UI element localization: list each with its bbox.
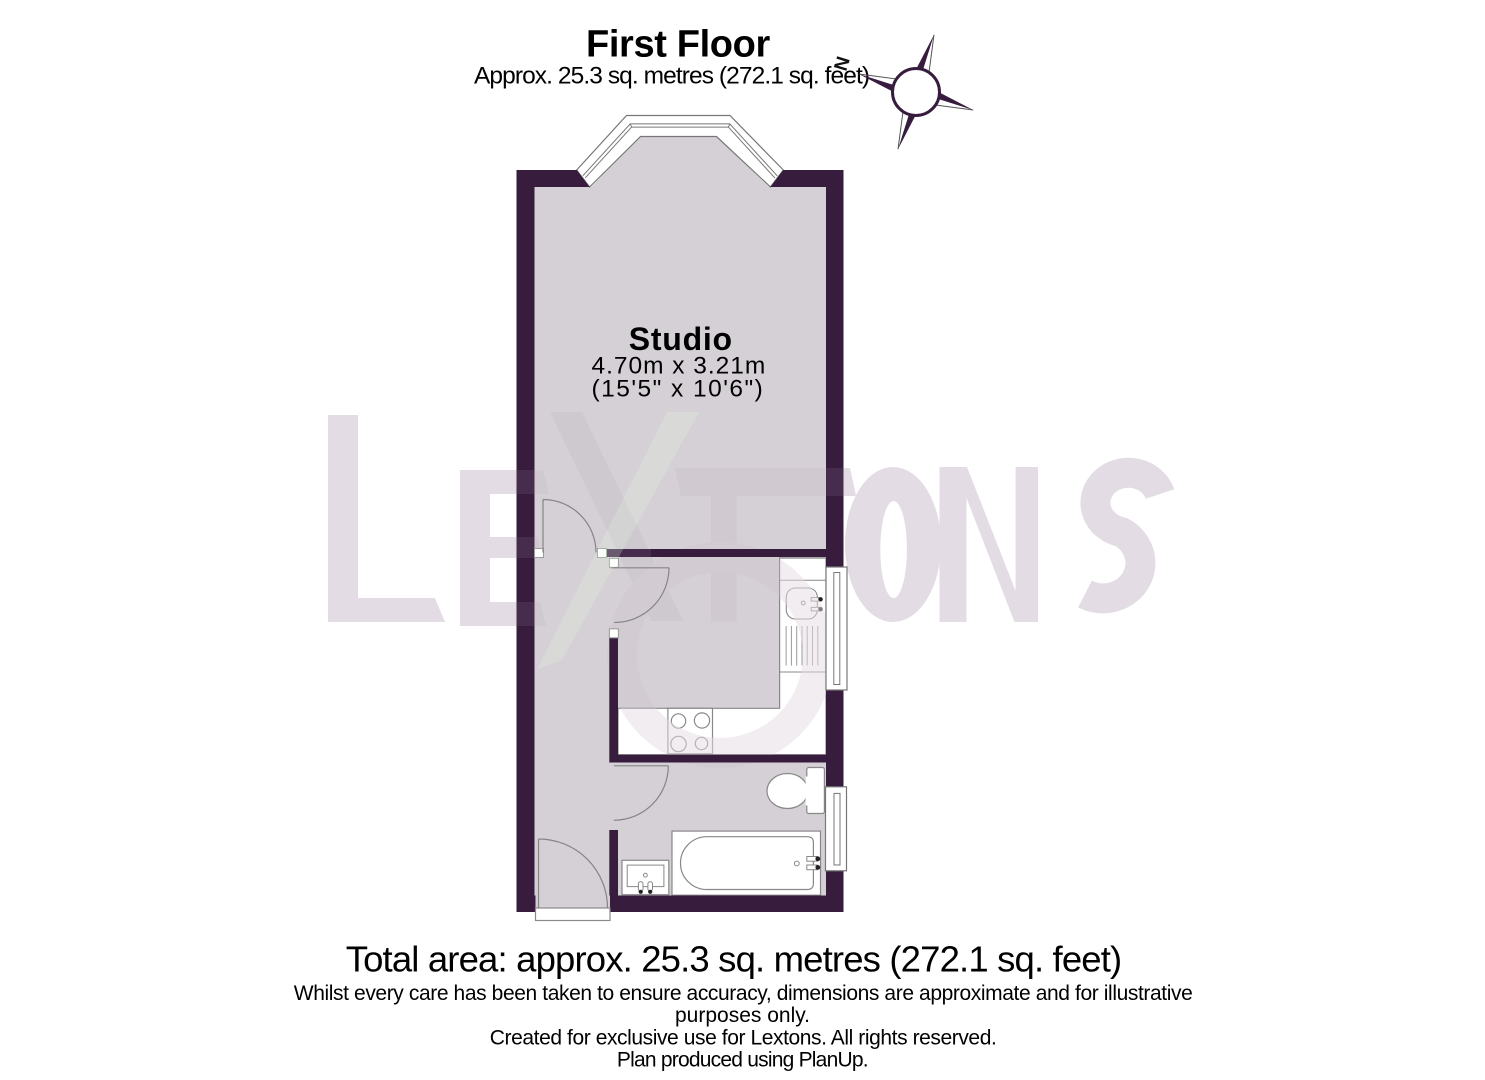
svg-text:(15'5" x 10'6"): (15'5" x 10'6") [592,376,763,403]
svg-text:Whilst every care has been tak: Whilst every care has been taken to ensu… [294,982,1193,1005]
svg-text:Plan produced using PlanUp.: Plan produced using PlanUp. [617,1049,869,1072]
svg-text:Approx. 25.3 sq. metres (272.1: Approx. 25.3 sq. metres (272.1 sq. feet) [474,63,870,90]
svg-text:Total area: approx. 25.3 sq. m: Total area: approx. 25.3 sq. metres (272… [346,939,1122,980]
svg-text:Created for exclusive use for: Created for exclusive use for Lextons. A… [490,1027,997,1050]
svg-text:First Floor: First Floor [586,24,771,66]
svg-text:purposes only.: purposes only. [675,1004,810,1027]
